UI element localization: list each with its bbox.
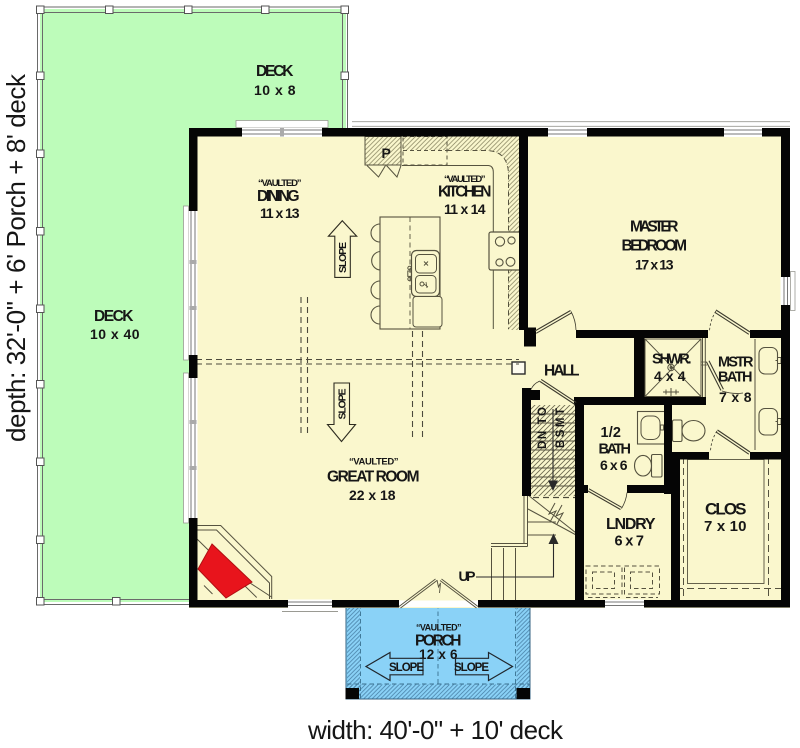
svg-text:10 x 8: 10 x 8 [254,82,296,98]
svg-text:width: 40'-0" + 10' deck: width: 40'-0" + 10' deck [307,715,564,745]
svg-text:22 x 18: 22 x 18 [349,487,396,503]
svg-text:DECK: DECK [94,308,134,325]
svg-text:4 x 4: 4 x 4 [654,368,686,384]
svg-text:“VAULTED”: “VAULTED” [349,457,399,468]
svg-text:6 x 7: 6 x 7 [615,534,645,550]
svg-text:DN TO: DN TO [537,407,549,449]
svg-text:GREAT ROOM: GREAT ROOM [327,469,420,486]
svg-text:SLOPE: SLOPE [337,242,349,273]
svg-text:UP: UP [459,568,476,584]
svg-text:MASTER: MASTER [630,219,679,236]
svg-text:17 x 13: 17 x 13 [635,257,674,273]
svg-text:BEDROOM: BEDROOM [622,238,688,255]
svg-text:KITCHEN: KITCHEN [438,184,492,201]
svg-text:BATH: BATH [718,370,753,386]
svg-text:HALL: HALL [544,363,580,380]
svg-text:12 x 6: 12 x 6 [419,647,458,662]
svg-text:11 x 13: 11 x 13 [260,205,300,221]
svg-text:10 x 40: 10 x 40 [90,326,140,342]
svg-text:11 x 14: 11 x 14 [444,201,486,217]
svg-text:BSMT: BSMT [555,408,567,448]
svg-text:DECK: DECK [256,63,294,80]
svg-text:SLOPE: SLOPE [454,662,489,674]
svg-text:SHWR.: SHWR. [652,352,692,368]
svg-text:7 x 8: 7 x 8 [719,389,752,405]
svg-text:SLOPE: SLOPE [389,662,424,674]
svg-text:CLOS: CLOS [705,500,747,519]
svg-text:SLOPE: SLOPE [337,389,349,420]
svg-text:6 x 6: 6 x 6 [600,457,628,473]
svg-text:1/2: 1/2 [601,425,622,441]
svg-text:depth: 32'-0" + 6' Porch + 8': depth: 32'-0" + 6' Porch + 8' deck [1,73,31,442]
svg-text:P: P [382,145,391,161]
svg-text:“VAULTED”: “VAULTED” [416,623,462,633]
svg-text:BATH: BATH [599,442,632,458]
svg-text:DINING: DINING [257,188,300,205]
svg-text:7 x 10: 7 x 10 [704,518,747,535]
svg-text:LNDRY: LNDRY [606,516,656,533]
svg-text:MSTR: MSTR [718,355,754,371]
